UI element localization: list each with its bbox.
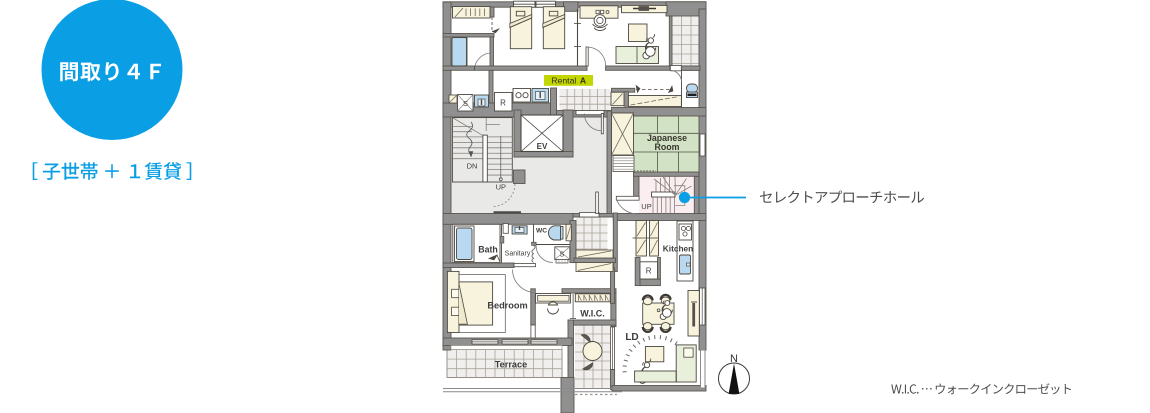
svg-text:R: R [500, 99, 506, 108]
svg-text:DN: DN [467, 162, 478, 171]
svg-text:UP: UP [641, 202, 651, 211]
svg-text:N: N [730, 353, 738, 365]
svg-text:Bedroom: Bedroom [487, 301, 527, 311]
svg-text:LD: LD [625, 332, 638, 343]
svg-text:Room: Room [655, 142, 680, 152]
svg-text:Kitchen: Kitchen [663, 244, 693, 254]
svg-text:W.I.C.: W.I.C. [580, 309, 605, 319]
svg-text:S: S [463, 99, 468, 108]
svg-text:A: A [580, 75, 586, 85]
svg-text:R: R [646, 267, 652, 276]
svg-text:S: S [560, 252, 565, 259]
svg-text:Terrace: Terrace [495, 360, 528, 370]
svg-text:Sanitary: Sanitary [505, 251, 531, 258]
svg-text:UP: UP [496, 182, 506, 191]
svg-text:WC: WC [536, 228, 547, 235]
svg-text:Rental: Rental [551, 75, 576, 85]
svg-text:EV: EV [537, 142, 548, 151]
svg-text:Bath: Bath [478, 245, 498, 255]
